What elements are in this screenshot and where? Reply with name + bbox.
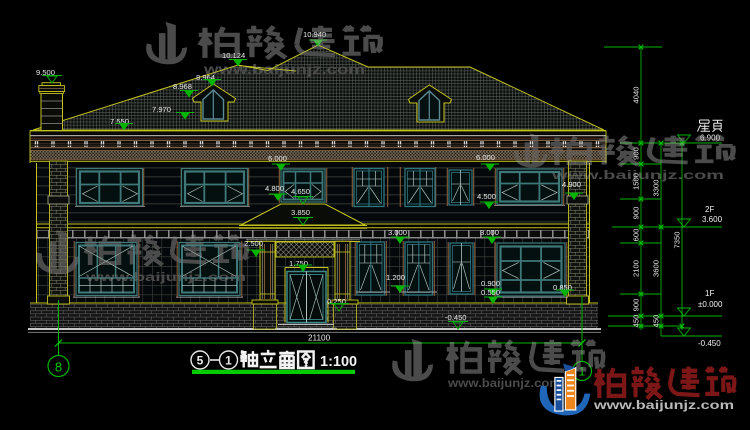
svg-text:1:100: 1:100 [320,354,357,370]
svg-text:-0.450: -0.450 [445,313,467,322]
svg-text:900: 900 [632,207,641,220]
svg-text:4040: 4040 [632,87,641,104]
svg-text:600: 600 [632,229,641,242]
svg-text:1.200: 1.200 [386,273,405,282]
svg-text:4.800: 4.800 [265,184,284,193]
svg-text:1F: 1F [705,289,714,298]
svg-text:0.550: 0.550 [481,288,500,297]
svg-text:4.650: 4.650 [291,187,310,196]
svg-text:2100: 2100 [632,260,641,277]
svg-text:21100: 21100 [308,334,331,343]
svg-text:450: 450 [652,315,661,328]
svg-text:±0.000: ±0.000 [698,300,723,309]
svg-text:www.baijunjz.com: www.baijunjz.com [84,270,246,284]
svg-text:6.000: 6.000 [476,153,495,162]
svg-text:1: 1 [225,354,232,368]
svg-text:3600: 3600 [652,260,661,277]
svg-text:0.900: 0.900 [481,279,500,288]
svg-text:6.000: 6.000 [268,154,287,163]
svg-text:www.baijunjz.com: www.baijunjz.com [593,400,734,412]
svg-text:3.000: 3.000 [388,228,407,237]
svg-text:900: 900 [632,299,641,312]
svg-text:8.968: 8.968 [173,82,192,91]
svg-text:3.850: 3.850 [291,208,310,217]
svg-text:7350: 7350 [673,232,682,249]
svg-text:3300: 3300 [652,180,661,197]
svg-text:2F: 2F [705,205,714,214]
svg-text:450: 450 [632,315,641,328]
svg-text:4.500: 4.500 [477,192,496,201]
svg-text:7.970: 7.970 [152,105,171,114]
svg-text:3.600: 3.600 [702,215,723,224]
svg-text:www.baijunjz.com: www.baijunjz.com [203,62,365,77]
svg-text:www.baijunjz.com: www.baijunjz.com [550,168,724,182]
svg-text:8: 8 [55,360,62,375]
svg-text:3.000: 3.000 [480,228,499,237]
svg-text:-0.450: -0.450 [698,339,721,348]
svg-text:5: 5 [197,354,204,368]
